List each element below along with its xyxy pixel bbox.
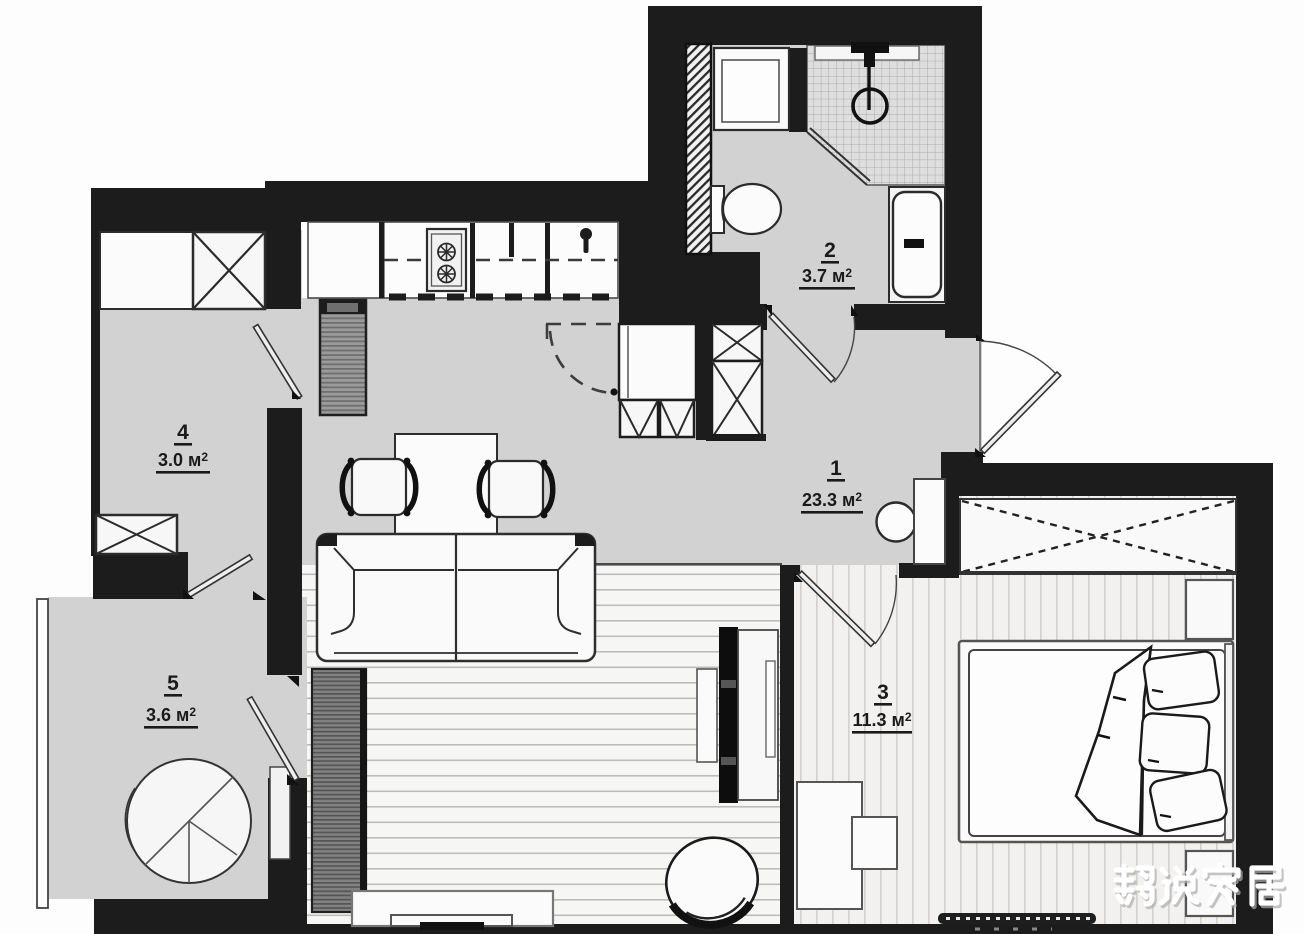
svg-text:23.3 м2: 23.3 м2 [802, 490, 862, 510]
svg-text:3.6 м2: 3.6 м2 [146, 705, 196, 725]
svg-text:3.0 м2: 3.0 м2 [158, 450, 208, 470]
svg-text:3: 3 [877, 681, 889, 704]
svg-text:2: 2 [824, 239, 836, 262]
svg-text:11.3 м2: 11.3 м2 [852, 710, 911, 730]
svg-text:3.7 м2: 3.7 м2 [802, 266, 852, 286]
svg-text:4: 4 [177, 421, 189, 444]
svg-text:5: 5 [167, 672, 179, 695]
svg-text:1: 1 [830, 457, 842, 480]
